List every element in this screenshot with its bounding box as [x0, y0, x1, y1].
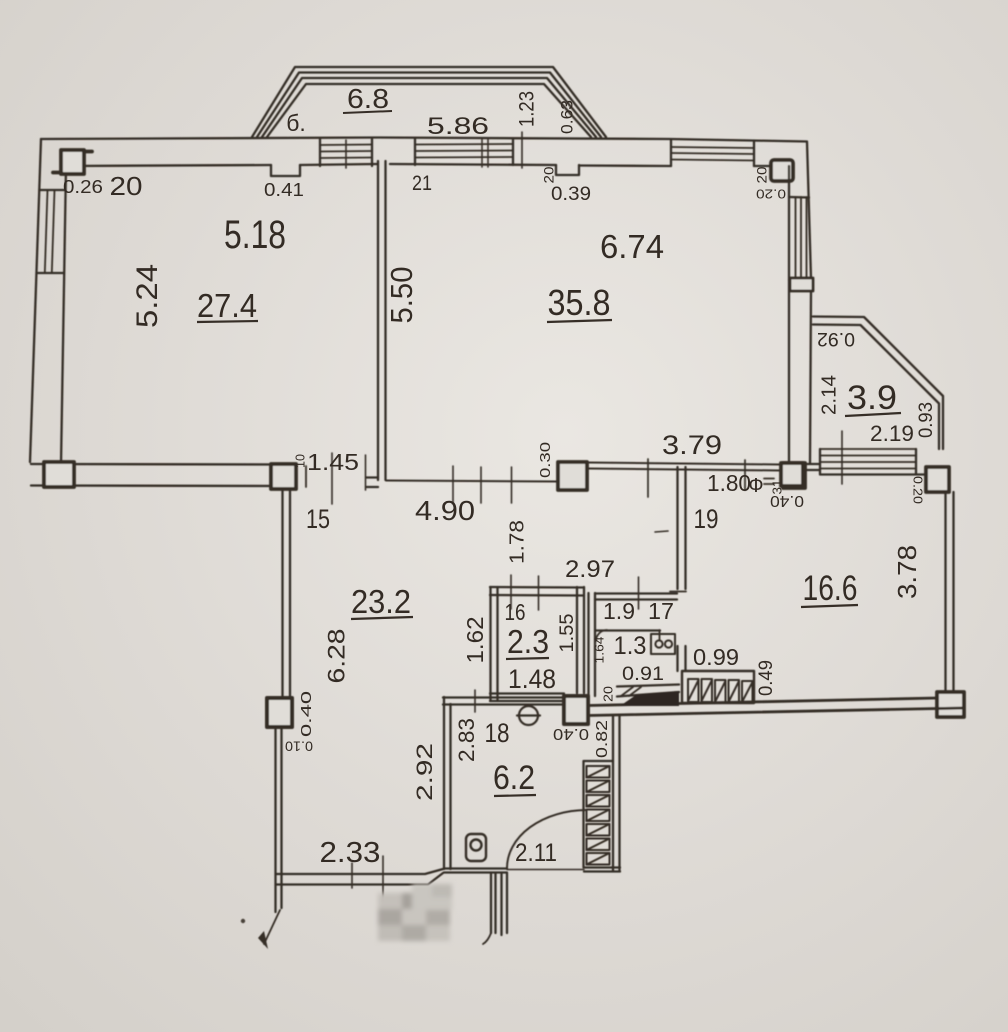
svg-text:18: 18 [485, 718, 510, 748]
svg-text:2.33: 2.33 [320, 837, 381, 869]
svg-text:1.3: 1.3 [614, 632, 647, 660]
svg-text:6.2: 6.2 [493, 759, 535, 797]
svg-text:5.86: 5.86 [427, 113, 489, 140]
svg-text:1.62: 1.62 [462, 617, 488, 664]
svg-text:20: 20 [600, 686, 615, 702]
svg-text:2.19: 2.19 [870, 421, 914, 446]
svg-text:5.18: 5.18 [224, 213, 286, 257]
svg-text:1.45: 1.45 [307, 449, 359, 475]
svg-text:5.50: 5.50 [384, 267, 419, 324]
svg-text:3.78: 3.78 [892, 545, 922, 599]
svg-text:2.3: 2.3 [507, 623, 549, 660]
svg-text:0.10: 0.10 [285, 738, 313, 754]
svg-text:0.26: 0.26 [63, 177, 103, 197]
svg-text:16.6: 16.6 [803, 569, 858, 608]
svg-text:0.91: 0.91 [622, 664, 664, 685]
svg-text:2.92: 2.92 [412, 743, 437, 801]
svg-text:1.55: 1.55 [557, 614, 578, 653]
svg-text:0.39: 0.39 [551, 184, 591, 205]
svg-text:0.40: 0.40 [553, 725, 589, 742]
svg-text:0.92: 0.92 [817, 328, 855, 349]
svg-text:б.: б. [286, 110, 306, 136]
svg-text:4.90: 4.90 [415, 495, 475, 526]
svg-text:0.41: 0.41 [264, 180, 304, 200]
svg-text:0.63: 0.63 [557, 100, 576, 134]
svg-text:23.2: 23.2 [351, 583, 411, 620]
svg-text:0.40: 0.40 [298, 691, 315, 737]
svg-text:2.83: 2.83 [454, 718, 479, 762]
svg-text:20: 20 [541, 166, 557, 183]
svg-text:1.48: 1.48 [508, 664, 556, 694]
svg-text:19: 19 [694, 504, 719, 534]
svg-text:0.20: 0.20 [911, 476, 926, 504]
svg-text:27.4: 27.4 [197, 287, 257, 324]
svg-text:1.9: 1.9 [603, 598, 635, 624]
svg-text:35.8: 35.8 [548, 282, 611, 323]
svg-text:0.82: 0.82 [594, 720, 611, 758]
svg-text:15: 15 [306, 504, 330, 534]
svg-text:21: 21 [412, 172, 432, 195]
svg-text:1.23: 1.23 [516, 91, 539, 127]
svg-text:0.99: 0.99 [693, 644, 739, 670]
svg-text:2.11: 2.11 [515, 839, 557, 867]
svg-text:5.24: 5.24 [131, 264, 164, 328]
svg-text:10: 10 [292, 454, 307, 468]
svg-text:17: 17 [648, 598, 674, 624]
svg-text:3.79: 3.79 [662, 430, 722, 460]
svg-text:1.64: 1.64 [591, 637, 606, 664]
svg-text:6.28: 6.28 [323, 629, 350, 684]
svg-text:1.78: 1.78 [506, 520, 528, 564]
svg-text:20: 20 [110, 171, 143, 201]
svg-text:2.14: 2.14 [818, 375, 840, 415]
svg-text:6.8: 6.8 [347, 83, 389, 114]
svg-text:1.80: 1.80 [707, 470, 751, 496]
svg-text:3.9: 3.9 [847, 379, 897, 417]
svg-text:0.93: 0.93 [916, 402, 937, 438]
svg-text:Ф: Ф [748, 475, 763, 497]
svg-text:0.20: 0.20 [756, 187, 786, 202]
svg-text:16: 16 [505, 599, 526, 625]
svg-text:2.97: 2.97 [565, 556, 615, 583]
svg-text:0.30: 0.30 [537, 442, 554, 478]
svg-text:0.49: 0.49 [756, 660, 777, 696]
svg-text:6.74: 6.74 [600, 228, 664, 265]
svg-text:0.40: 0.40 [770, 492, 804, 509]
svg-text:20: 20 [754, 166, 770, 183]
